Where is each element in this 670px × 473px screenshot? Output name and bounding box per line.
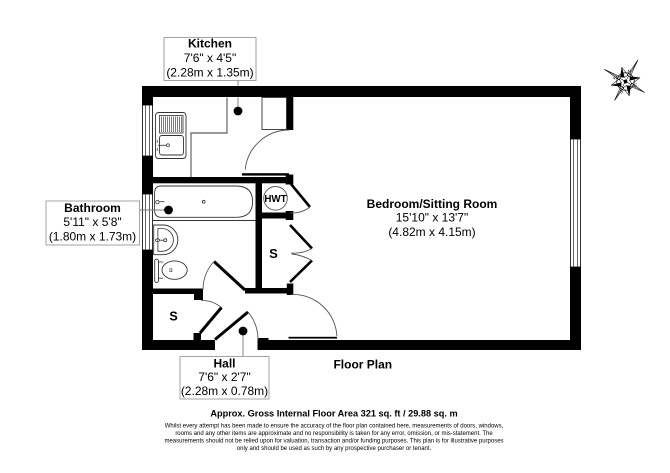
svg-text:measurements should not be rel: measurements should not be relied upon f… bbox=[164, 439, 503, 445]
svg-text:(4.82m x 4.15m): (4.82m x 4.15m) bbox=[388, 225, 475, 239]
svg-text:15'10" x 13'7": 15'10" x 13'7" bbox=[396, 211, 469, 225]
svg-text:Bedroom/Sitting Room: Bedroom/Sitting Room bbox=[367, 197, 498, 211]
svg-text:Whilst every attempt has been: Whilst every attempt has been made to en… bbox=[165, 424, 504, 430]
svg-text:N: N bbox=[627, 68, 631, 74]
svg-text:Approx. Gross Internal Floor A: Approx. Gross Internal Floor Area 321 sq… bbox=[210, 409, 457, 419]
svg-text:Floor Plan: Floor Plan bbox=[333, 357, 392, 371]
svg-text:(2.28m x 0.78m): (2.28m x 0.78m) bbox=[181, 384, 268, 398]
svg-text:only and should be used as suc: only and should be used as such by any p… bbox=[237, 446, 432, 452]
svg-text:Kitchen: Kitchen bbox=[188, 37, 232, 51]
svg-text:7'6" x 2'7": 7'6" x 2'7" bbox=[198, 370, 250, 384]
svg-text:rooms and any other items are: rooms and any other items are approximat… bbox=[175, 431, 493, 437]
svg-text:S: S bbox=[269, 246, 278, 261]
svg-text:7'6" x 4'5": 7'6" x 4'5" bbox=[184, 51, 236, 65]
svg-text:HWT: HWT bbox=[264, 194, 286, 205]
svg-text:E: E bbox=[634, 83, 638, 89]
svg-text:Hall: Hall bbox=[213, 357, 235, 371]
svg-text:(1.80m x 1.73m): (1.80m x 1.73m) bbox=[49, 230, 136, 244]
svg-text:S: S bbox=[169, 309, 177, 323]
svg-text:(2.28m x 1.35m): (2.28m x 1.35m) bbox=[166, 66, 253, 80]
svg-text:Bathroom: Bathroom bbox=[64, 201, 121, 215]
svg-text:5'11" x 5'8": 5'11" x 5'8" bbox=[63, 215, 121, 229]
